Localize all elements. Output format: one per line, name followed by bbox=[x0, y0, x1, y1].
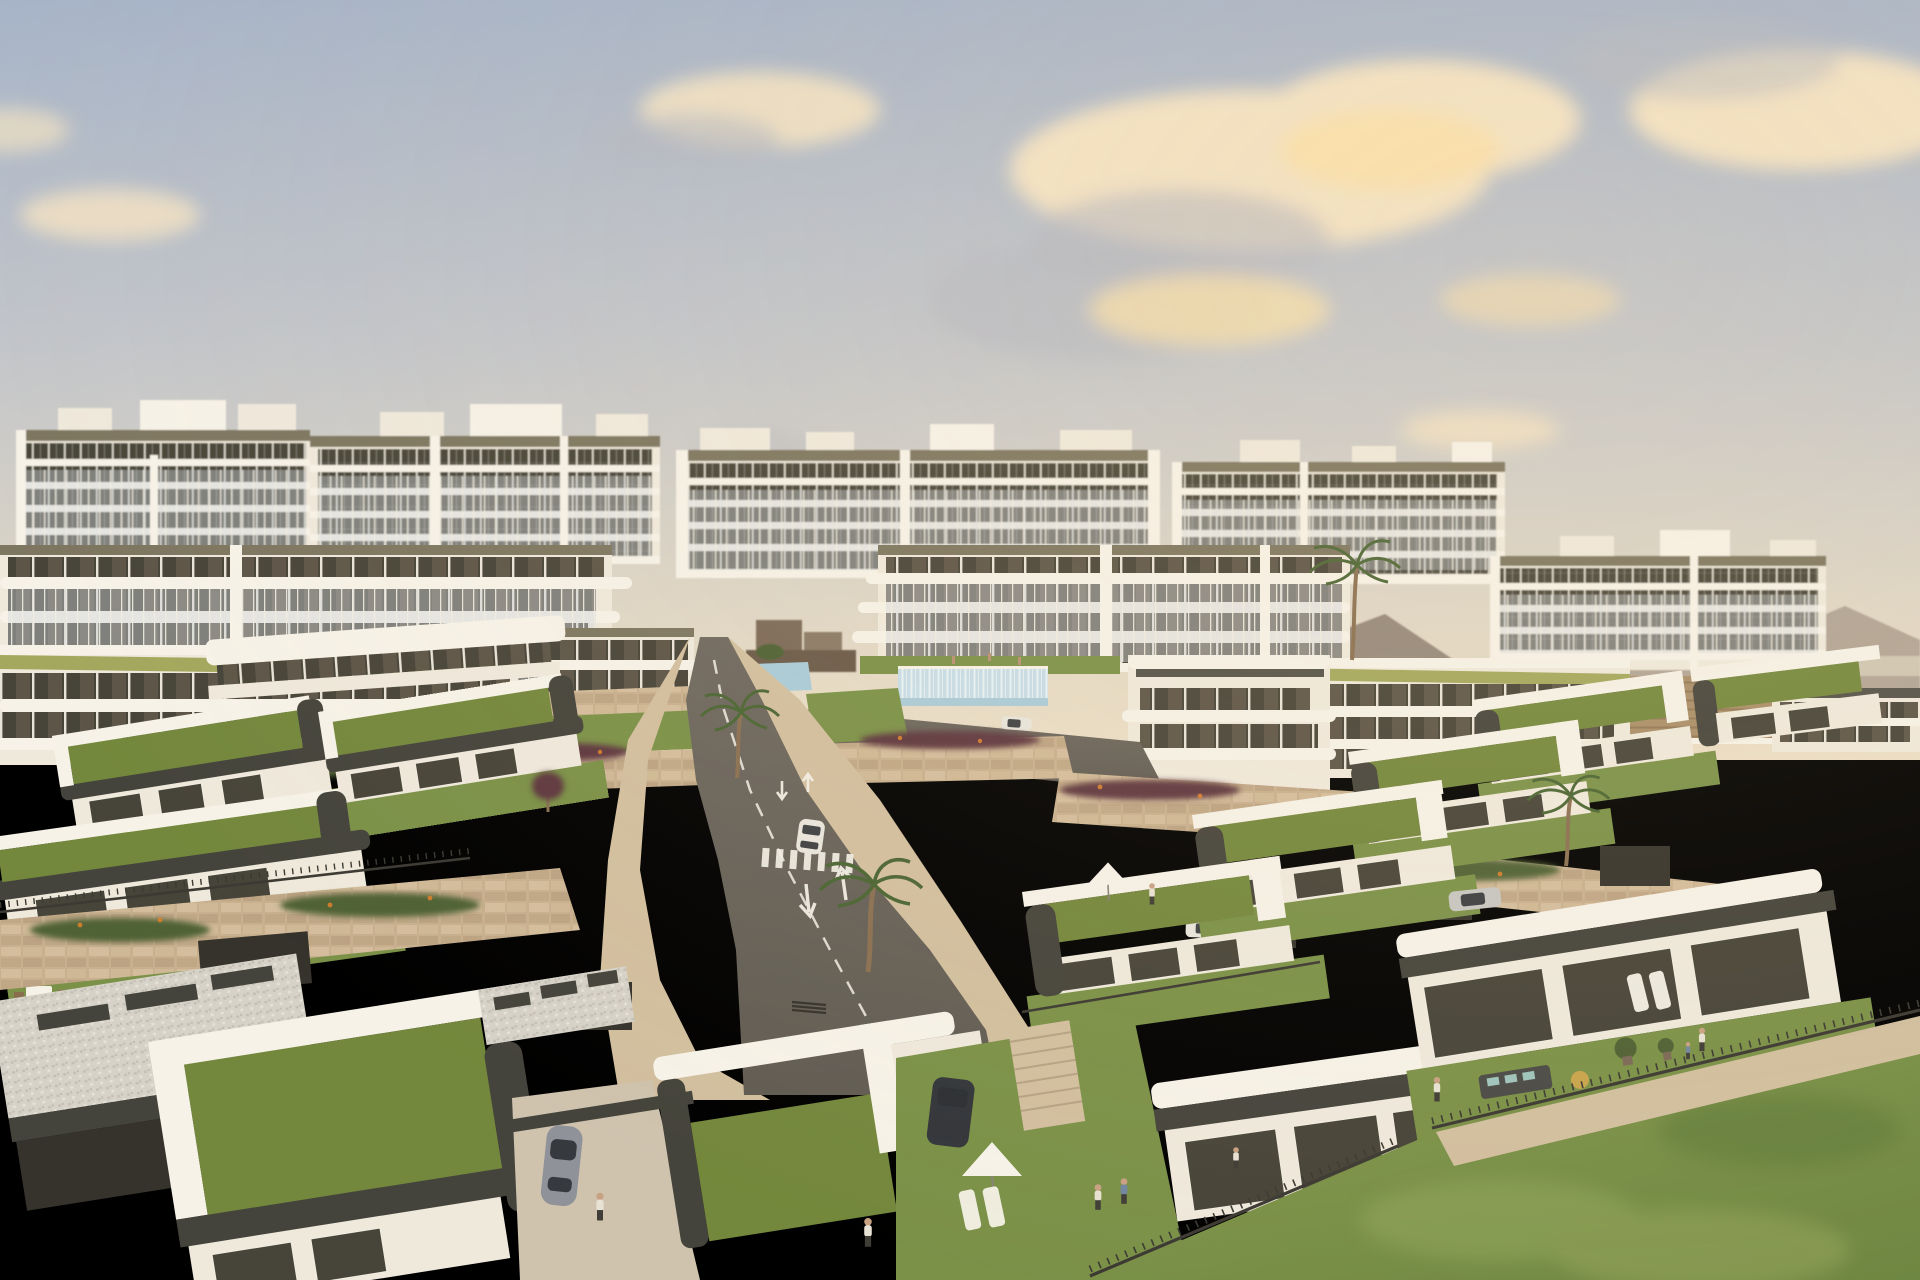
golden-hour-glow bbox=[0, 0, 1920, 1280]
render-canvas: Golden-hour aerial render of a hillside … bbox=[0, 0, 1920, 1280]
resort-aerial-render: Golden-hour aerial render of a hillside … bbox=[0, 0, 1920, 1280]
